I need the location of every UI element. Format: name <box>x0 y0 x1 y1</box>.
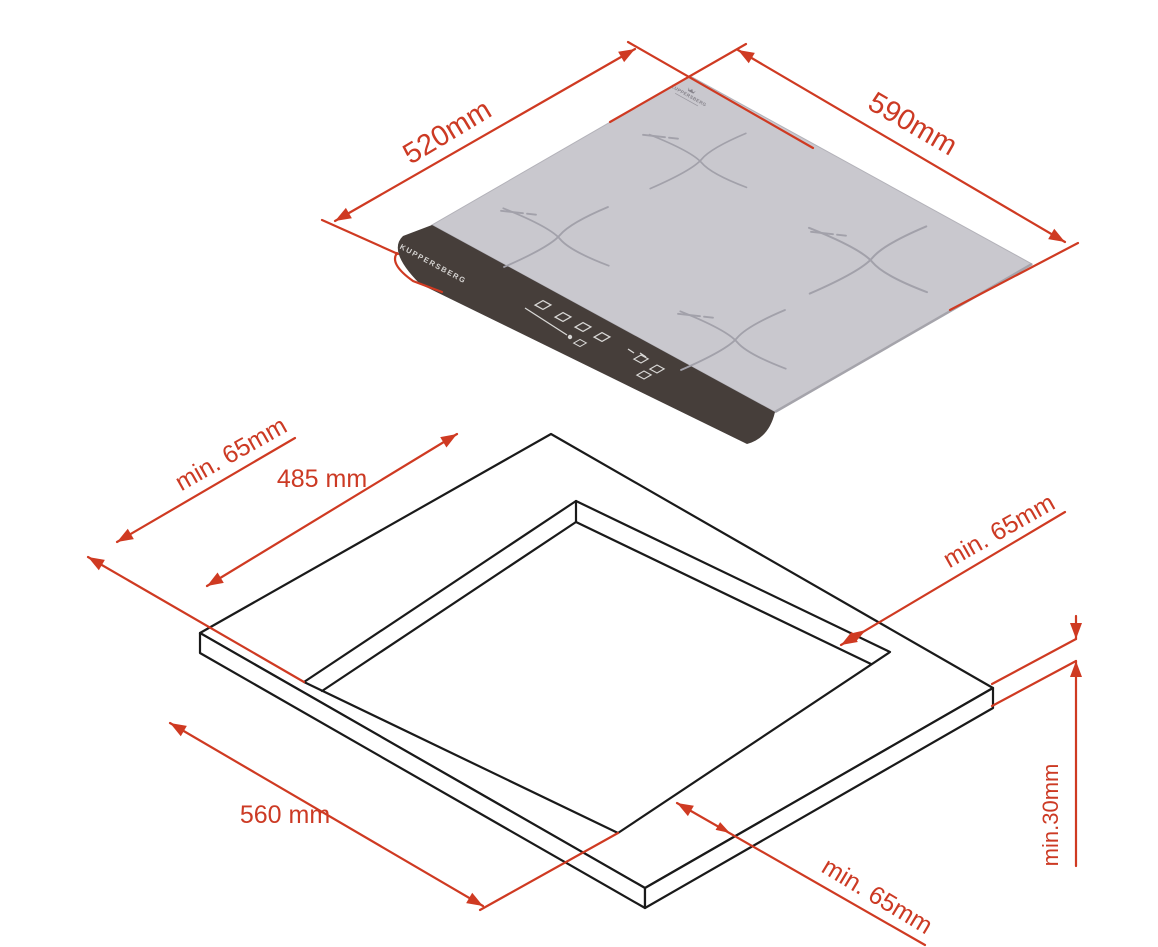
cooktop-view: KUPPERSBERG KUPPERSBERG <box>322 42 1078 444</box>
dimension-line-clearance-front <box>677 803 925 945</box>
dim-label-cutout-depth: 485 mm <box>277 465 367 493</box>
cutout-view: min. 65mm 485 mm min. 65mm 560 mm min. 6… <box>88 411 1076 945</box>
dim-label-depth: 520mm <box>398 94 497 171</box>
dim-label-clearance-right: min. 65mm <box>938 488 1059 573</box>
extension-line-thickness-bottom <box>992 661 1076 706</box>
installation-diagram: KUPPERSBERG KUPPERSBERG <box>0 0 1158 947</box>
dimension-line-clearance-right <box>841 512 1065 645</box>
extension-line-thickness-top <box>992 639 1076 684</box>
dim-label-clearance-front: min. 65mm <box>817 852 937 940</box>
dim-label-clearance-left: min. 65mm <box>170 411 291 496</box>
dim-label-width: 590mm <box>863 86 963 162</box>
dim-label-cutout-width: 560 mm <box>240 801 330 829</box>
extension-line <box>322 220 398 254</box>
dim-label-thickness: min.30mm <box>1038 764 1063 867</box>
diagram-svg: KUPPERSBERG KUPPERSBERG <box>0 0 1158 947</box>
slider-dot-icon <box>568 335 572 339</box>
